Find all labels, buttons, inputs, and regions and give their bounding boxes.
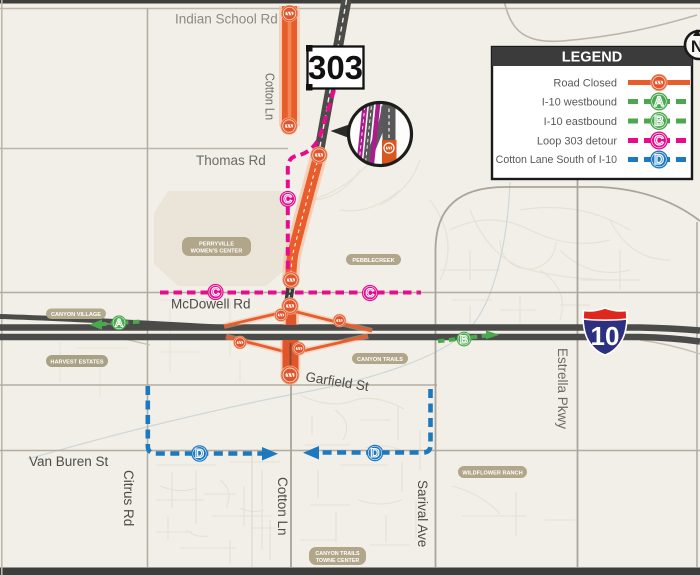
svg-text:PEBBLECREEK: PEBBLECREEK xyxy=(352,258,394,264)
svg-text:303: 303 xyxy=(308,49,363,86)
svg-text:WOMEN'S CENTER: WOMEN'S CENTER xyxy=(191,249,243,255)
svg-text:I-10 eastbound: I-10 eastbound xyxy=(544,116,617,128)
svg-text:Cotton Lane South of I-10: Cotton Lane South of I-10 xyxy=(496,154,617,166)
svg-text:CANYON VILLAGE: CANYON VILLAGE xyxy=(51,312,101,318)
svg-text:PERRYVILLE: PERRYVILLE xyxy=(199,242,234,248)
svg-text:Estrella Pkwy: Estrella Pkwy xyxy=(555,348,570,429)
svg-text:CANYON TRAILS: CANYON TRAILS xyxy=(357,357,403,363)
svg-text:HARVEST ESTATES: HARVEST ESTATES xyxy=(50,360,103,366)
svg-text:Cotton Ln: Cotton Ln xyxy=(275,477,290,536)
svg-text:Citrus Rd: Citrus Rd xyxy=(121,470,136,526)
svg-text:Sarival Ave: Sarival Ave xyxy=(415,480,430,547)
svg-text:WILDFLOWER RANCH: WILDFLOWER RANCH xyxy=(462,471,522,477)
svg-text:Road Closed: Road Closed xyxy=(553,78,617,90)
svg-text:LEGEND: LEGEND xyxy=(562,50,622,66)
svg-text:McDowell Rd: McDowell Rd xyxy=(171,297,251,312)
svg-text:10: 10 xyxy=(591,321,620,351)
svg-text:Cotton Ln: Cotton Ln xyxy=(263,73,277,120)
svg-text:CANYON TRAILS: CANYON TRAILS xyxy=(315,551,360,557)
svg-text:Van Buren St: Van Buren St xyxy=(29,454,109,469)
svg-text:N: N xyxy=(691,37,700,56)
svg-text:Indian School Rd: Indian School Rd xyxy=(175,12,278,27)
svg-text:I-10 westbound: I-10 westbound xyxy=(542,97,617,109)
svg-text:TOWNE CENTER: TOWNE CENTER xyxy=(316,558,360,564)
svg-text:Loop 303 detour: Loop 303 detour xyxy=(537,136,617,148)
svg-text:Thomas Rd: Thomas Rd xyxy=(196,153,266,168)
